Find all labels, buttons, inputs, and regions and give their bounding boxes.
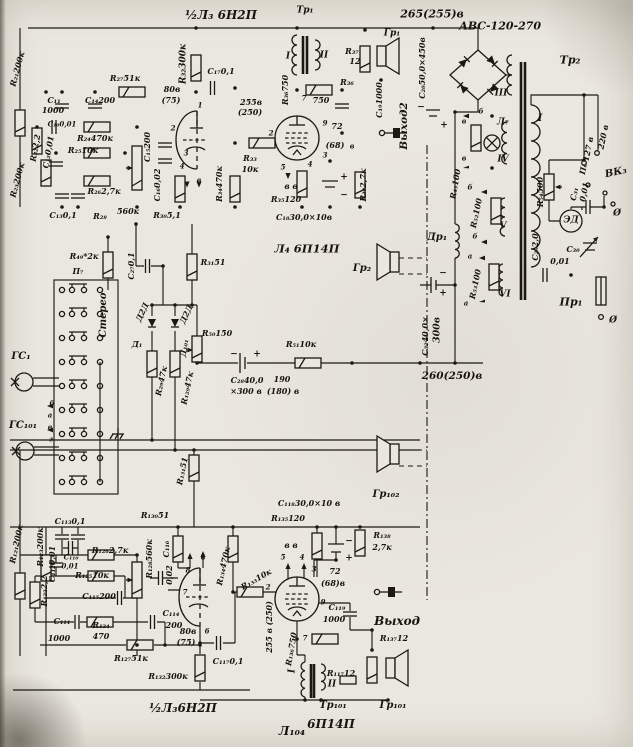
- tube-half-6n2p-bottom: [179, 568, 208, 626]
- transformer-tr1: [292, 35, 320, 75]
- lamp-l7-icon: [484, 135, 500, 151]
- tube-6p14p-bottom: [275, 577, 319, 621]
- wire-net-mid: [10, 28, 604, 527]
- speaker-gr2-icon: [377, 244, 399, 280]
- speaker-gr102-icon: [377, 436, 399, 472]
- speaker-dash-links: [399, 258, 427, 466]
- wire-net-bottom: [10, 450, 420, 700]
- switch-p7: [54, 280, 118, 494]
- diode-d101: [171, 319, 179, 327]
- chassis-ground-icon: [110, 428, 124, 439]
- tube-half-6n2p-top: [176, 111, 205, 169]
- output-jack-icon: [374, 587, 402, 597]
- motor-ed-icon: [560, 210, 582, 232]
- choke-dr1: [455, 224, 459, 258]
- transformer-tr2: [499, 62, 540, 300]
- speaker-gr1-icon: [377, 38, 399, 74]
- speaker-gr101-icon: [386, 650, 408, 686]
- fuse-pr1: [596, 277, 606, 319]
- rectifier-bridge: [450, 50, 512, 100]
- connector-gs101: [12, 442, 34, 460]
- transformer-tr101: [301, 662, 325, 698]
- tube-6p14p-top: [275, 116, 319, 160]
- output2-jack-icon: [379, 128, 407, 138]
- mains-switches: [582, 151, 615, 206]
- diode-d1: [148, 319, 156, 327]
- schematic-page: ½Л₃ 6Н2ПТр₁265(255)вАВС-120-270Тр₂Гр₁R₃₇…: [0, 0, 633, 747]
- schematic-canvas: [0, 0, 633, 747]
- connector-gs1: [11, 373, 33, 391]
